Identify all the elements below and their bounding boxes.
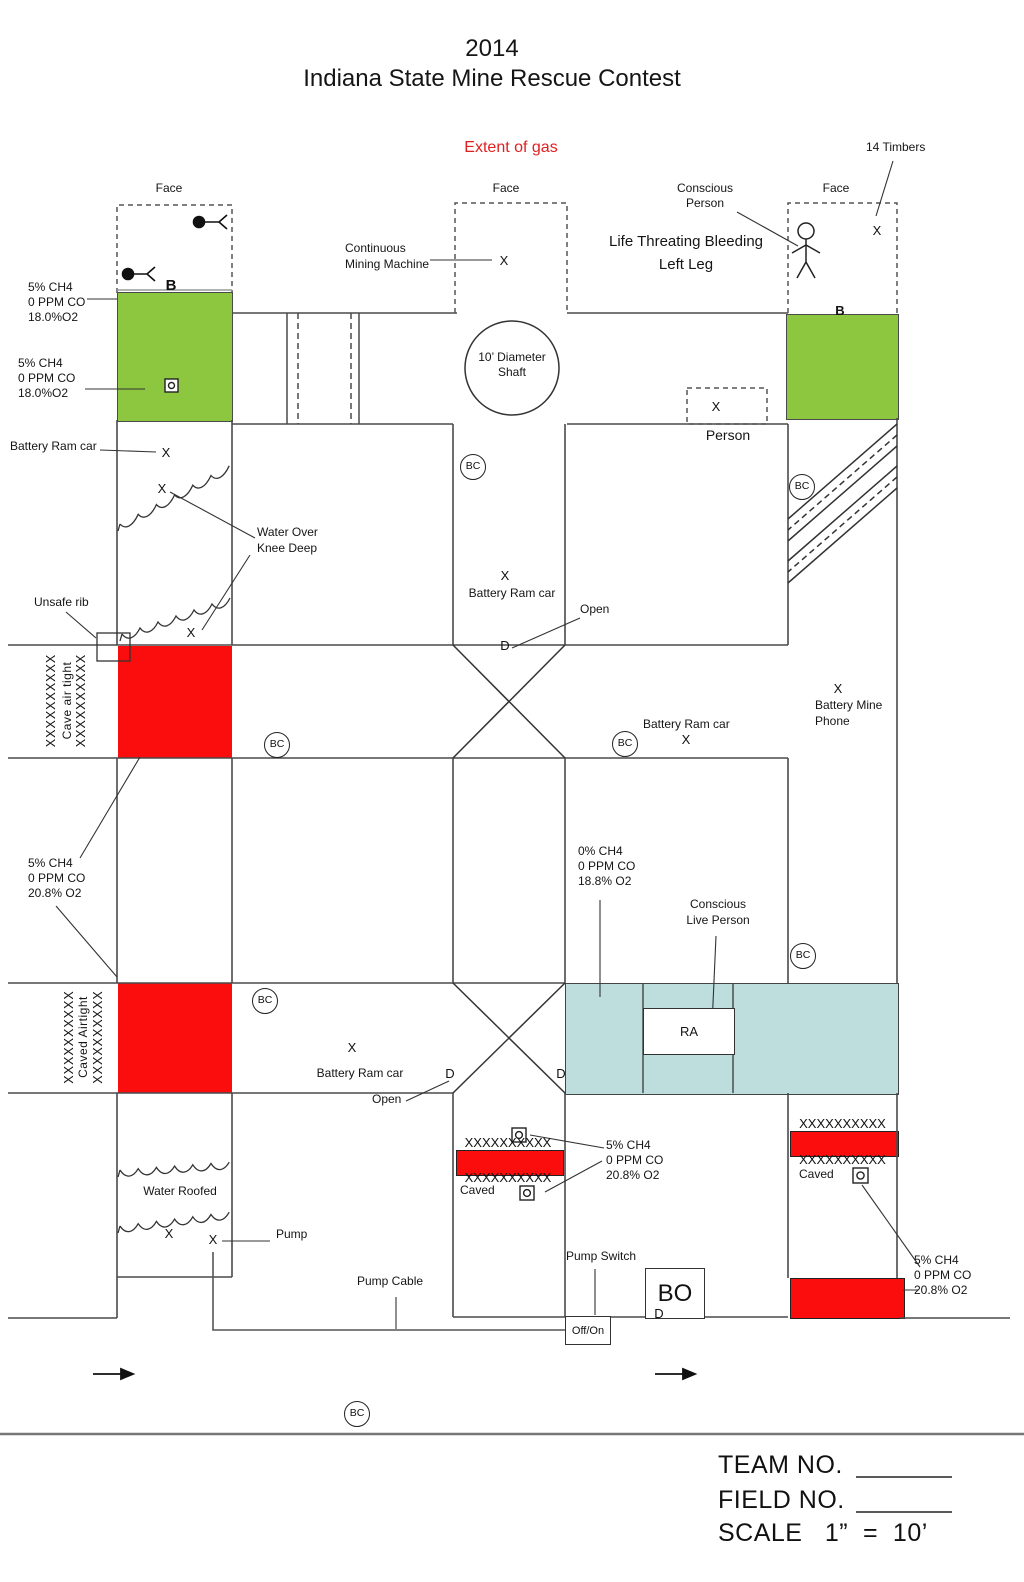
x-marker-person: X — [709, 399, 723, 414]
airflow-arrow-icon — [93, 1369, 695, 1379]
person-label: Person — [698, 428, 758, 443]
gas-reading-left-low: 5% CH4 0 PPM CO 20.8% O2 — [28, 856, 85, 901]
door-marker-3: D — [554, 1066, 568, 1081]
page-title: Indiana State Mine Rescue Contest — [192, 64, 792, 94]
blank-field-lines — [856, 1477, 952, 1512]
pump-label: Pump — [276, 1227, 307, 1242]
gas-reading-caved-right: 5% CH4 0 PPM CO 20.8% O2 — [914, 1253, 971, 1298]
bc-marker-7: BC — [344, 1401, 370, 1427]
seal-hatch-col-2b: XXXXXXXXXX — [91, 983, 106, 1091]
caved-hatch-right-bottom: XXXXXXXXXX — [786, 1152, 899, 1167]
face-dashed-boxes — [117, 203, 897, 424]
gas-zone-left — [117, 292, 233, 422]
pump-cable-label: Pump Cable — [357, 1274, 423, 1289]
battery-ram-car-label-4: Battery Ram car — [305, 1066, 415, 1081]
bc-marker-2: BC — [789, 474, 815, 500]
seal-hatch-col-1b: XXXXXXXXXX — [74, 644, 89, 757]
battery-ram-car-label-1: Battery Ram car — [10, 439, 97, 454]
gas-zone-right — [786, 314, 899, 420]
caved-zone-left-1 — [118, 646, 232, 758]
gas-reading-center: 0% CH4 0 PPM CO 18.8% O2 — [578, 844, 635, 889]
bc-marker-4: BC — [612, 731, 638, 757]
gas-reading-left-mid: 5% CH4 0 PPM CO 18.0%O2 — [18, 356, 75, 401]
face-label-right: Face — [806, 181, 866, 196]
battery-ram-car-label-2: Battery Ram car — [457, 586, 567, 601]
open-label-2: Open — [372, 1092, 401, 1107]
conscious-person-label: Conscious Person — [666, 181, 744, 211]
water-over-knee-deep-label: Water Over Knee Deep — [257, 524, 318, 556]
bc-marker-1: BC — [460, 454, 486, 480]
continuous-miner-label: Continuous Mining Machine — [345, 240, 429, 272]
shaft-label: 10’ Diameter Shaft — [455, 350, 569, 380]
field-no-label: FIELD NO. — [718, 1483, 845, 1517]
pump-switch-label: Pump Switch — [566, 1249, 636, 1264]
gas-reading-left-top: 5% CH4 0 PPM CO 18.0%O2 — [28, 280, 85, 325]
x-marker-water-1: X — [155, 481, 169, 496]
barricade-marker-left: B — [164, 277, 178, 294]
x-marker-continuous-miner: X — [497, 253, 511, 268]
off-on-label: Off/On — [572, 1325, 604, 1337]
seal-hatch-col-2a: XXXXXXXXXX — [62, 983, 77, 1091]
battery-ram-car-label-3: Battery Ram car — [643, 717, 730, 732]
face-label-left: Face — [139, 181, 199, 196]
caved-hatch-right-top: XXXXXXXXXX — [786, 1116, 899, 1131]
roof-bolt-icon — [123, 215, 228, 281]
x-marker-mine-phone: X — [831, 681, 845, 696]
x-marker-timbers: X — [870, 223, 884, 238]
gas-reading-caved-center: 5% CH4 0 PPM CO 20.8% O2 — [606, 1138, 663, 1183]
timbers-label: 14 Timbers — [866, 140, 925, 155]
mine-rescue-map: 2014 Indiana State Mine Rescue Contest E… — [0, 0, 1024, 1582]
person-location-box — [687, 388, 767, 424]
ra-box: RA — [643, 1008, 735, 1055]
bc-marker-5: BC — [252, 988, 278, 1014]
x-marker-battery-ram-3: X — [679, 732, 693, 747]
water-roofed-label: Water Roofed — [135, 1184, 225, 1199]
team-no-label: TEAM NO. — [718, 1448, 843, 1482]
x-marker-battery-ram-4: X — [345, 1040, 359, 1055]
curtain-lines — [287, 313, 359, 424]
bc-marker-3: BC — [264, 732, 290, 758]
x-marker-water-roofed: X — [162, 1226, 176, 1241]
x-marker-battery-ram-2: X — [498, 568, 512, 583]
bc-marker-6: BC — [790, 943, 816, 969]
caved-zone-bottom-right — [790, 1278, 905, 1319]
cave-air-tight-label: Cave air tight — [60, 644, 75, 757]
barricade-marker-right: B — [833, 303, 847, 318]
open-label-1: Open — [580, 602, 609, 617]
bo-label: BO — [658, 1280, 693, 1308]
x-marker-water-2: X — [184, 625, 198, 640]
door-marker-2: D — [443, 1066, 457, 1081]
belt-crossing-icon — [788, 424, 897, 583]
unsafe-rib-label: Unsafe rib — [34, 595, 89, 610]
scale-label: SCALE 1” = 10’ — [718, 1516, 928, 1550]
ra-label: RA — [680, 1024, 698, 1039]
caved-label-right: Caved — [799, 1167, 834, 1182]
x-marker-pump: X — [206, 1232, 220, 1247]
life-threat-label: Life Threating Bleeding Left Leg — [596, 230, 776, 276]
door-marker-1: D — [498, 638, 512, 653]
pump-switch-box: Off/On — [565, 1316, 611, 1345]
caved-airtight-label: Caved Airtight — [76, 983, 91, 1091]
stick-figure-icon — [792, 223, 820, 278]
caved-zone-left-2 — [118, 983, 232, 1093]
extent-of-gas-label: Extent of gas — [411, 140, 611, 155]
caved-label-center: Caved — [460, 1183, 495, 1198]
crossed-intersections — [453, 645, 565, 1093]
seal-hatch-col-1a: XXXXXXXXXX — [44, 644, 59, 757]
page-title-year: 2014 — [192, 34, 792, 64]
water-wave-lines — [118, 466, 230, 1233]
conscious-live-person-label: Conscious Live Person — [678, 896, 758, 928]
caved-hatch-center-top: XXXXXXXXXX — [452, 1135, 564, 1150]
pump-cable-line — [213, 1252, 565, 1330]
x-marker-battery-ram-1: X — [159, 445, 173, 460]
battery-mine-phone-label: Battery Mine Phone — [815, 697, 882, 729]
door-marker-4: D — [652, 1306, 666, 1321]
face-label-center: Face — [476, 181, 536, 196]
